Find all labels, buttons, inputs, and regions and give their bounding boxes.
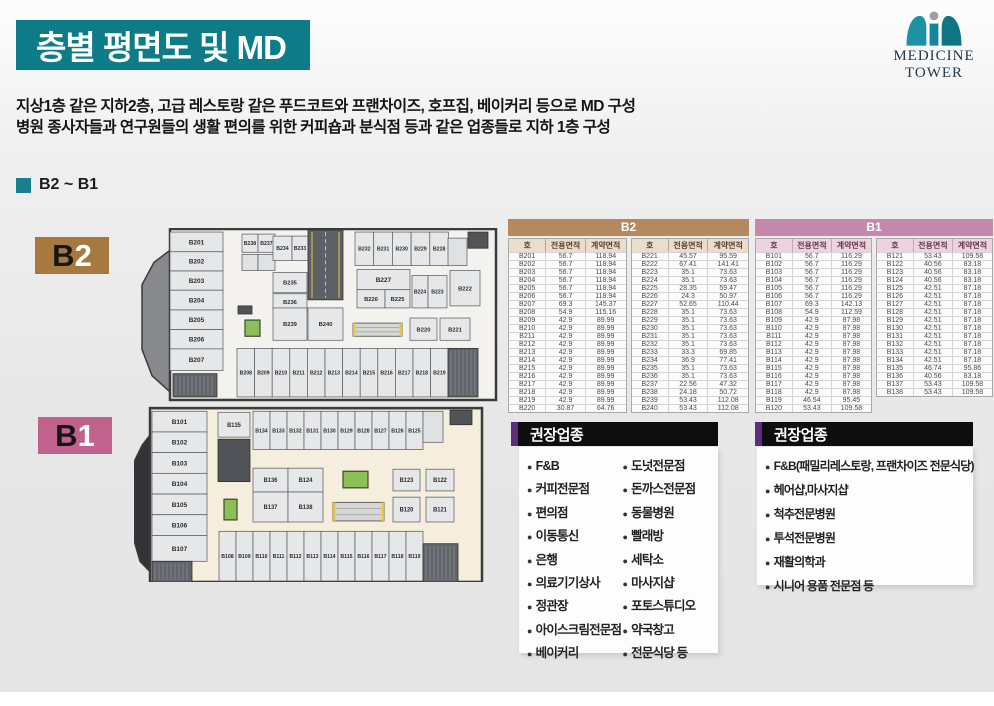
table-row: B21642.989.99 — [509, 372, 626, 380]
svg-text:B111: B111 — [273, 554, 285, 560]
svg-text:B201: B201 — [189, 239, 205, 246]
intro-line-1: 지상1층 같은 지하2층, 고급 레스토랑 같은 푸드코트와 프랜차이즈, 호프… — [16, 96, 736, 117]
svg-text:B222: B222 — [458, 286, 473, 292]
table-row: B21842.989.99 — [509, 388, 626, 396]
table-row: B11142.987.98 — [756, 332, 871, 340]
table-row: B22835.173.63 — [632, 308, 749, 316]
table-row: B23135.173.63 — [632, 332, 749, 340]
area-table-b1: B1 호전용면적계약면적 B10156.7116.29B10256.7116.2… — [755, 219, 993, 413]
svg-text:B220: B220 — [417, 327, 431, 333]
recommended-businesses-b1: 권장업종 ●F&B(패밀리레스토랑, 프랜차이즈 전문식당)●헤어샵,마사지샵●… — [755, 422, 973, 585]
area-table-b2-right: 호전용면적계약면적 B22145.5795.59B22267.41141.41B… — [631, 238, 750, 413]
svg-text:B223: B223 — [431, 290, 444, 296]
slide: 층별 평면도 및 MD MEDICINE TOWER 지상1층 같은 지하2층,… — [0, 0, 994, 706]
table-row: B12942.5187.18 — [877, 316, 992, 324]
recommended-list-b1: ●F&B(패밀리레스토랑, 프랜차이즈 전문식당)●헤어샵,마사지샵●척추전문병… — [757, 447, 973, 585]
area-table-b2-left: 호전용면적계약면적 B20156.7118.94B20256.7118.94B2… — [508, 238, 627, 413]
col-header-exclusive-area: 전용면적 — [914, 239, 953, 252]
svg-text:B211: B211 — [293, 371, 305, 377]
svg-text:B103: B103 — [172, 460, 188, 467]
svg-text:B102: B102 — [172, 440, 188, 447]
list-item: ●아이스크림전문점 — [527, 619, 623, 642]
table-row: B24053.43112.08 — [632, 404, 749, 412]
list-item: ●돈까스전문점 — [623, 478, 719, 501]
col-header-exclusive-area: 전용면적 — [793, 239, 832, 252]
svg-text:B240: B240 — [319, 322, 333, 328]
svg-text:B125: B125 — [408, 428, 420, 434]
svg-text:B105: B105 — [172, 502, 188, 509]
col-header-exclusive-area: 전용면적 — [669, 239, 709, 252]
svg-text:B209: B209 — [257, 371, 270, 377]
svg-text:B123: B123 — [400, 478, 415, 484]
recommended-title: 권장업종 — [518, 422, 718, 446]
col-header-unit: 호 — [509, 239, 546, 252]
table-row: B22435.173.63 — [632, 276, 749, 284]
table-row: B21542.989.99 — [509, 364, 626, 372]
list-item: ●동물병원 — [623, 502, 719, 525]
recommended-header: 권장업종 — [511, 422, 718, 446]
table-row: B12440.5683.18 — [877, 276, 992, 284]
svg-text:B215: B215 — [363, 371, 376, 377]
area-table-b1-right: 호전용면적계약면적 B12153.43109.58B12240.5683.18B… — [876, 238, 993, 397]
table-row: B20556.7118.94 — [509, 284, 626, 292]
svg-text:B232: B232 — [358, 247, 371, 253]
svg-text:B206: B206 — [189, 337, 205, 344]
col-header-contract-area: 계약면적 — [586, 239, 626, 252]
intro-text: 지상1층 같은 지하2층, 고급 레스토랑 같은 푸드코트와 프랜차이즈, 호프… — [16, 96, 736, 138]
page-title: 층별 평면도 및 MD — [16, 20, 310, 70]
table-row: B20942.989.99 — [509, 316, 626, 324]
svg-text:B101: B101 — [172, 419, 188, 426]
table-row: B12240.5683.18 — [877, 260, 992, 268]
table-row: B13442.5187.18 — [877, 356, 992, 364]
table-row: B13546.7495.86 — [877, 364, 992, 372]
table-row: B23953.43112.08 — [632, 396, 749, 404]
col-header-contract-area: 계약면적 — [953, 239, 992, 252]
table-row: B11342.987.98 — [756, 348, 871, 356]
svg-text:B119: B119 — [408, 554, 420, 560]
list-item: ●마사지샵 — [623, 572, 719, 595]
recommended-list-b2: ●F&B●커피전문점●편의점●이동통신●은행●의료기기상사●정관장●아이스크림전… — [519, 447, 718, 653]
list-item: ●정관장 — [527, 595, 623, 618]
area-table-b2: B2 호전용면적계약면적 B20156.7118.94B20256.7118.9… — [508, 219, 749, 413]
svg-text:B112: B112 — [289, 554, 301, 560]
col-header-exclusive-area: 전용면적 — [546, 239, 586, 252]
table-row: B10356.7116.29 — [756, 268, 871, 276]
medicine-tower-logo: MEDICINE TOWER — [878, 8, 990, 82]
table-row: B11242.987.98 — [756, 340, 871, 348]
svg-text:B121: B121 — [433, 508, 448, 514]
list-item: ●이동통신 — [527, 525, 623, 548]
svg-text:B128: B128 — [357, 428, 369, 434]
svg-text:B205: B205 — [189, 317, 205, 324]
table-row: B11542.987.98 — [756, 364, 871, 372]
floor-label-b2-number: 2 — [75, 240, 92, 271]
svg-text:B231: B231 — [377, 247, 390, 253]
table-row: B22145.5795.59 — [632, 252, 749, 260]
svg-text:B122: B122 — [433, 478, 448, 484]
table-header-row: 호전용면적계약면적 — [756, 239, 871, 252]
list-item: ●재활의학과 — [765, 551, 973, 575]
floorplan-b2: B201B202B203B204B205B206B207B238B237B234… — [140, 228, 498, 402]
bottom-margin — [0, 692, 994, 706]
svg-text:B216: B216 — [380, 371, 393, 377]
table-row: B11042.987.98 — [756, 324, 871, 332]
table-row: B12742.5187.18 — [877, 300, 992, 308]
list-item: ●시니어 용품 전문점 등 — [765, 575, 973, 599]
svg-text:B114: B114 — [323, 554, 335, 560]
svg-text:B224: B224 — [414, 290, 427, 296]
col-header-unit: 호 — [756, 239, 793, 252]
area-table-b1-left: 호전용면적계약면적 B10156.7116.29B10256.7116.29B1… — [755, 238, 872, 413]
table-row: B10854.9112.59 — [756, 308, 871, 316]
list-item: ●빨래방 — [623, 525, 719, 548]
svg-text:B137: B137 — [264, 505, 279, 511]
table-row: B23235.173.63 — [632, 340, 749, 348]
list-item: ●은행 — [527, 549, 623, 572]
table-row: B22335.173.63 — [632, 268, 749, 276]
table-row: B13753.43109.58 — [877, 380, 992, 388]
intro-line-2: 병원 종사자들과 연구원들의 생활 편의를 위한 커피숍과 분식점 등과 같은 … — [16, 117, 736, 138]
svg-text:B120: B120 — [400, 508, 415, 514]
floor-label-b2: B2 — [35, 237, 109, 274]
table-row: B23535.173.63 — [632, 364, 749, 372]
table-row: B10656.7116.29 — [756, 292, 871, 300]
svg-text:B202: B202 — [189, 259, 205, 266]
svg-text:B208: B208 — [240, 371, 253, 377]
table-row: B10256.7116.29 — [756, 260, 871, 268]
floorplan-b1: B101B102B103B104B105B106B107B135B134B133… — [134, 404, 486, 582]
list-item: ●도넛전문점 — [623, 455, 719, 478]
table-row: B22267.41141.41 — [632, 260, 749, 268]
table-row: B20656.7118.94 — [509, 292, 626, 300]
table-row: B10156.7116.29 — [756, 252, 871, 260]
svg-text:B126: B126 — [391, 428, 403, 434]
svg-text:B124: B124 — [299, 478, 314, 484]
table-row: B13640.5683.18 — [877, 372, 992, 380]
col-header-unit: 호 — [877, 239, 914, 252]
svg-text:B236: B236 — [283, 300, 298, 306]
table-row: B12340.5683.18 — [877, 268, 992, 276]
floorplan-svg: B101B102B103B104B105B106B107B135B134B133… — [134, 404, 486, 582]
floor-label-b2-prefix: B — [52, 240, 74, 271]
svg-text:B239: B239 — [283, 322, 298, 328]
table-row: B21742.989.99 — [509, 380, 626, 388]
section-label: B2 ~ B1 — [16, 176, 98, 194]
purple-accent-bar — [755, 422, 762, 446]
table-row: B20156.7118.94 — [509, 252, 626, 260]
purple-accent-bar — [511, 422, 518, 446]
svg-text:B118: B118 — [391, 554, 403, 560]
table-row: B23635.173.63 — [632, 372, 749, 380]
table-row: B13242.5187.18 — [877, 340, 992, 348]
table-row: B11742.987.98 — [756, 380, 871, 388]
list-item: ●약국창고 — [623, 619, 719, 642]
svg-text:B230: B230 — [396, 247, 409, 253]
table-row: B12642.5187.18 — [877, 292, 992, 300]
logo-m-icon — [901, 8, 967, 48]
table-header-row: 호전용면적계약면적 — [509, 239, 626, 252]
svg-text:B226: B226 — [364, 297, 379, 303]
svg-text:B115: B115 — [340, 554, 352, 560]
floor-label-b1-prefix: B — [55, 420, 77, 451]
svg-text:B117: B117 — [374, 554, 386, 560]
list-item: ●세탁소 — [623, 549, 719, 572]
table-row: B23333.369.85 — [632, 348, 749, 356]
svg-text:B218: B218 — [416, 371, 429, 377]
table-row: B23035.173.63 — [632, 324, 749, 332]
svg-text:B233: B233 — [294, 246, 307, 252]
svg-text:B227: B227 — [376, 277, 392, 284]
table-row: B23824.1850.72 — [632, 388, 749, 396]
svg-text:B110: B110 — [255, 554, 267, 560]
table-row: B21042.989.99 — [509, 324, 626, 332]
table-row: B12053.43109.58 — [756, 404, 871, 412]
list-item: ●헤어샵,마사지샵 — [765, 479, 973, 503]
table-row: B21242.989.99 — [509, 340, 626, 348]
table-row: B22528.3559.47 — [632, 284, 749, 292]
table-row: B20456.7118.94 — [509, 276, 626, 284]
table-row: B10769.3142.13 — [756, 300, 871, 308]
section-label-text: B2 ~ B1 — [39, 176, 98, 194]
table-row: B22935.173.63 — [632, 316, 749, 324]
list-item: ●포토스튜디오 — [623, 595, 719, 618]
table-row: B13342.5187.18 — [877, 348, 992, 356]
table-row: B12153.43109.58 — [877, 252, 992, 260]
svg-text:B213: B213 — [328, 371, 341, 377]
table-row: B21342.989.99 — [509, 348, 626, 356]
table-row: B10556.7116.29 — [756, 284, 871, 292]
table-row: B10942.987.98 — [756, 316, 871, 324]
table-row: B13853.43109.58 — [877, 388, 992, 396]
svg-text:B138: B138 — [299, 505, 314, 511]
list-item: ●척추전문병원 — [765, 503, 973, 527]
table-row: B20256.7118.94 — [509, 260, 626, 268]
area-table-b1-title: B1 — [755, 219, 993, 236]
svg-text:B234: B234 — [276, 246, 289, 252]
logo-text-line1: MEDICINE — [878, 48, 990, 65]
table-row: B21942.989.99 — [509, 396, 626, 404]
table-row: B20769.3145.37 — [509, 300, 626, 308]
svg-text:B219: B219 — [433, 371, 446, 377]
recommended-title: 권장업종 — [762, 422, 973, 446]
list-item: ●투석전문병원 — [765, 527, 973, 551]
svg-text:B237: B237 — [260, 241, 273, 247]
svg-text:B225: B225 — [391, 297, 406, 303]
logo-text-line2: TOWER — [878, 65, 990, 82]
table-row: B23722.5647.32 — [632, 380, 749, 388]
table-row: B10456.7116.29 — [756, 276, 871, 284]
col-header-contract-area: 계약면적 — [708, 239, 748, 252]
table-row: B22752.65110.44 — [632, 300, 749, 308]
table-row: B22030.8764.76 — [509, 404, 626, 412]
table-header-row: 호전용면적계약면적 — [877, 239, 992, 252]
svg-text:B132: B132 — [289, 428, 301, 434]
floor-label-b1: B1 — [38, 417, 112, 454]
table-row: B21442.989.99 — [509, 356, 626, 364]
table-row: B13142.5187.18 — [877, 332, 992, 340]
svg-text:B210: B210 — [275, 371, 288, 377]
floorplan-svg: B201B202B203B204B205B206B207B238B237B234… — [140, 228, 498, 402]
svg-text:B108: B108 — [221, 554, 233, 560]
table-header-row: 호전용면적계약면적 — [632, 239, 749, 252]
table-row: B20356.7118.94 — [509, 268, 626, 276]
list-item: ●전문식당 등 — [623, 642, 719, 665]
table-row: B20854.9115.16 — [509, 308, 626, 316]
svg-text:B107: B107 — [172, 546, 188, 553]
svg-text:B106: B106 — [172, 522, 188, 529]
svg-text:B130: B130 — [323, 428, 335, 434]
svg-text:B135: B135 — [227, 423, 242, 429]
table-row: B23436.977.41 — [632, 356, 749, 364]
list-item: ●커피전문점 — [527, 478, 623, 501]
table-row: B11946.5495.45 — [756, 396, 871, 404]
col-header-unit: 호 — [632, 239, 669, 252]
area-table-b2-title: B2 — [508, 219, 749, 236]
svg-text:B104: B104 — [172, 481, 188, 488]
list-item: ●베이커리 — [527, 642, 623, 665]
svg-text:B127: B127 — [374, 428, 386, 434]
table-row: B11442.987.98 — [756, 356, 871, 364]
svg-text:B221: B221 — [448, 327, 463, 333]
svg-text:B136: B136 — [264, 478, 279, 484]
table-row: B21142.989.99 — [509, 332, 626, 340]
svg-text:B207: B207 — [189, 357, 205, 364]
table-row: B12842.5187.18 — [877, 308, 992, 316]
table-row: B13042.5187.18 — [877, 324, 992, 332]
table-row: B12542.5187.18 — [877, 284, 992, 292]
svg-text:B203: B203 — [189, 278, 205, 285]
list-item: ●F&B — [527, 455, 623, 478]
list-item: ●의료기기상사 — [527, 572, 623, 595]
svg-text:B238: B238 — [244, 241, 257, 247]
svg-text:B113: B113 — [306, 554, 318, 560]
floor-label-b1-number: 1 — [78, 420, 95, 451]
list-item: ●F&B(패밀리레스토랑, 프랜차이즈 전문식당) — [765, 455, 973, 479]
svg-text:B217: B217 — [398, 371, 411, 377]
table-row: B11842.987.98 — [756, 388, 871, 396]
col-header-contract-area: 계약면적 — [832, 239, 871, 252]
svg-text:B133: B133 — [272, 428, 284, 434]
svg-text:B131: B131 — [306, 428, 318, 434]
table-row: B11642.987.98 — [756, 372, 871, 380]
svg-text:B228: B228 — [433, 247, 446, 253]
recommended-businesses-b2: 권장업종 ●F&B●커피전문점●편의점●이동통신●은행●의료기기상사●정관장●아… — [511, 422, 718, 653]
svg-text:B109: B109 — [238, 554, 250, 560]
svg-text:B235: B235 — [283, 281, 298, 287]
svg-text:B229: B229 — [414, 247, 427, 253]
svg-text:B214: B214 — [345, 371, 358, 377]
svg-text:B129: B129 — [340, 428, 352, 434]
table-row: B22624.350.97 — [632, 292, 749, 300]
svg-text:B134: B134 — [255, 428, 267, 434]
svg-text:B204: B204 — [189, 297, 205, 304]
svg-text:B212: B212 — [310, 371, 323, 377]
recommended-header: 권장업종 — [755, 422, 973, 446]
svg-text:B116: B116 — [357, 554, 369, 560]
section-bullet-square — [16, 178, 31, 193]
list-item: ●편의점 — [527, 502, 623, 525]
